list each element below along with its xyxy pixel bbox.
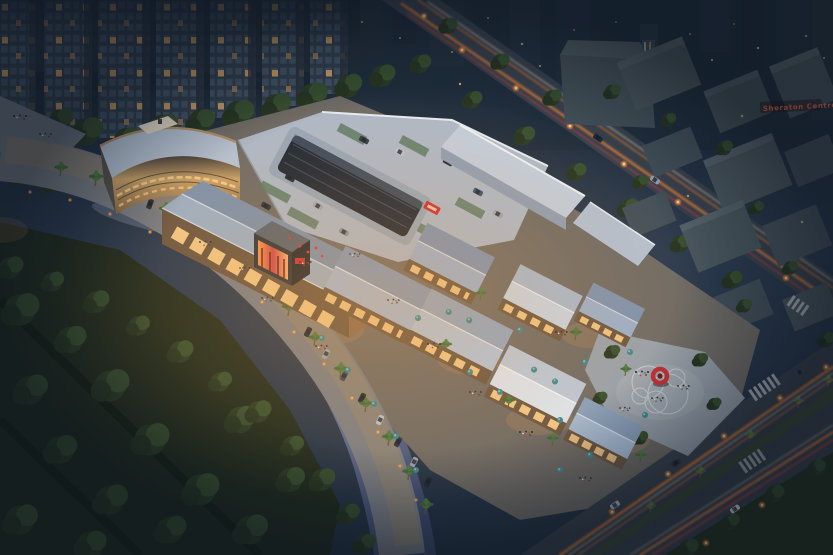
scene-svg: Sheraton Centre (0, 0, 833, 555)
atmosphere-overlays (0, 0, 833, 555)
aerial-rendering-canvas: Sheraton Centre (0, 0, 833, 555)
